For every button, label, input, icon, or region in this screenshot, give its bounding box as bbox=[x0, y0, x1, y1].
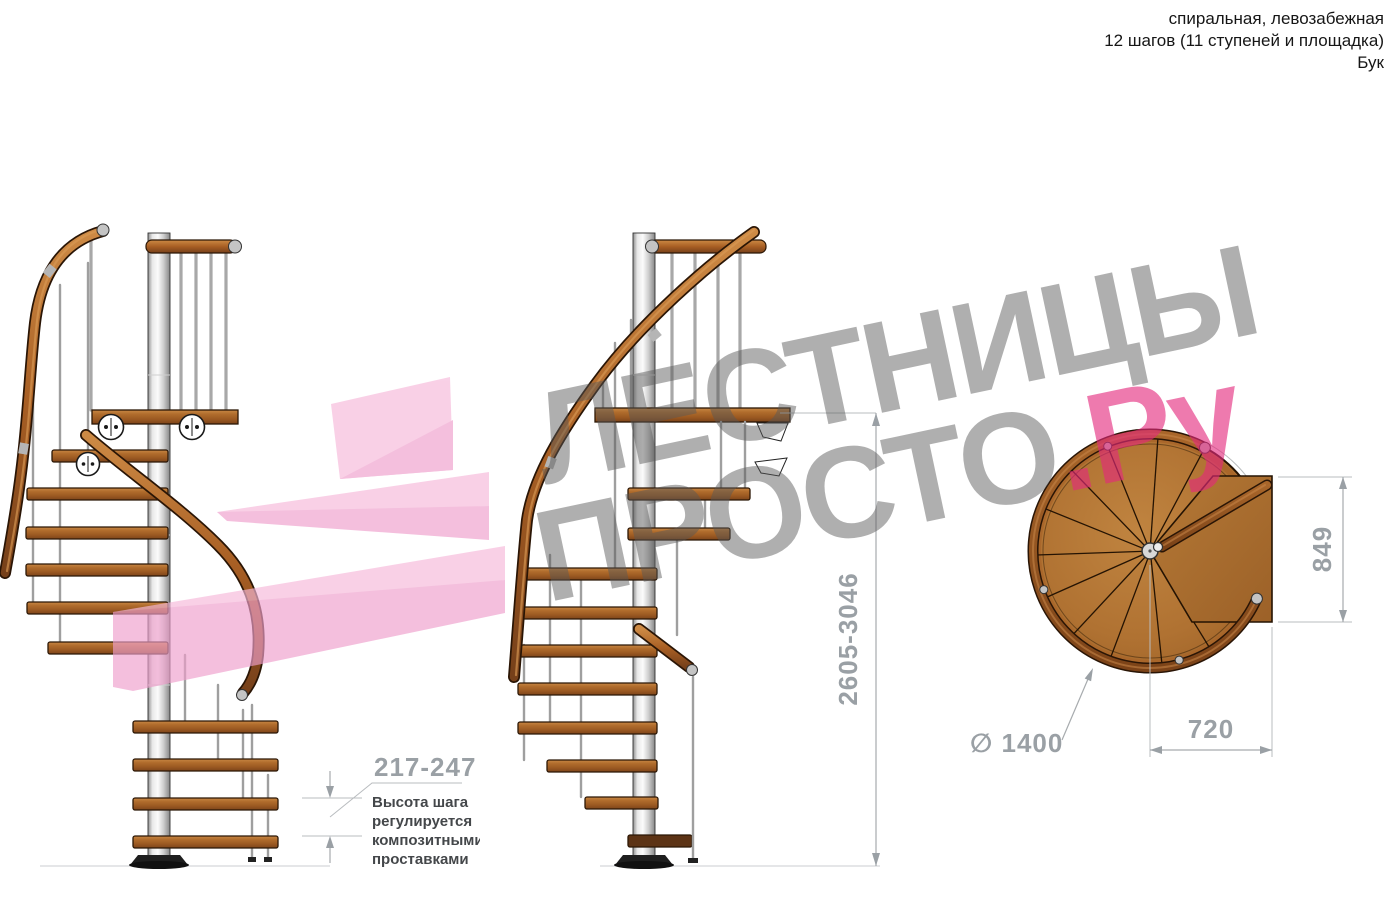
title-block: спиральная, левозабежная 12 шагов (11 ст… bbox=[1104, 8, 1384, 74]
pole-base-1 bbox=[129, 855, 189, 869]
step-height-note-2: регулируется bbox=[372, 813, 472, 830]
plan-depth-value: 849 bbox=[1307, 526, 1337, 572]
pole-base-2 bbox=[614, 855, 674, 869]
title-line-type: спиральная, левозабежная bbox=[1104, 8, 1384, 30]
total-height-value: 2605-3046 bbox=[833, 572, 863, 705]
step-height-note-4: проставками bbox=[372, 851, 469, 868]
logo-arrow bbox=[100, 370, 520, 710]
plan-width-value: 720 bbox=[1188, 714, 1234, 744]
title-line-steps: 12 шагов (11 ступеней и площадка) bbox=[1104, 30, 1384, 52]
dimension-diameter: ∅ 1400 bbox=[970, 668, 1093, 758]
diameter-value: ∅ 1400 bbox=[970, 728, 1063, 758]
title-line-material: Бук bbox=[1104, 52, 1384, 74]
dimension-step-height: 217-247 Высота шага регулируется компози… bbox=[302, 752, 480, 868]
plan-view: 849 720 ∅ 1400 bbox=[960, 395, 1400, 790]
handrail-left-1 bbox=[5, 224, 109, 573]
dimension-total-height: 2605-3046 bbox=[780, 413, 880, 866]
side-view-2: 2605-3046 bbox=[505, 215, 910, 885]
steps-left-2 bbox=[518, 568, 692, 847]
landing-platform-2 bbox=[595, 408, 790, 476]
step-height-value: 217-247 bbox=[374, 752, 476, 782]
dimension-849: 849 bbox=[1278, 477, 1352, 622]
step-height-note-3: композитными bbox=[372, 832, 480, 849]
step-height-note-1: Высота шага bbox=[372, 794, 469, 811]
